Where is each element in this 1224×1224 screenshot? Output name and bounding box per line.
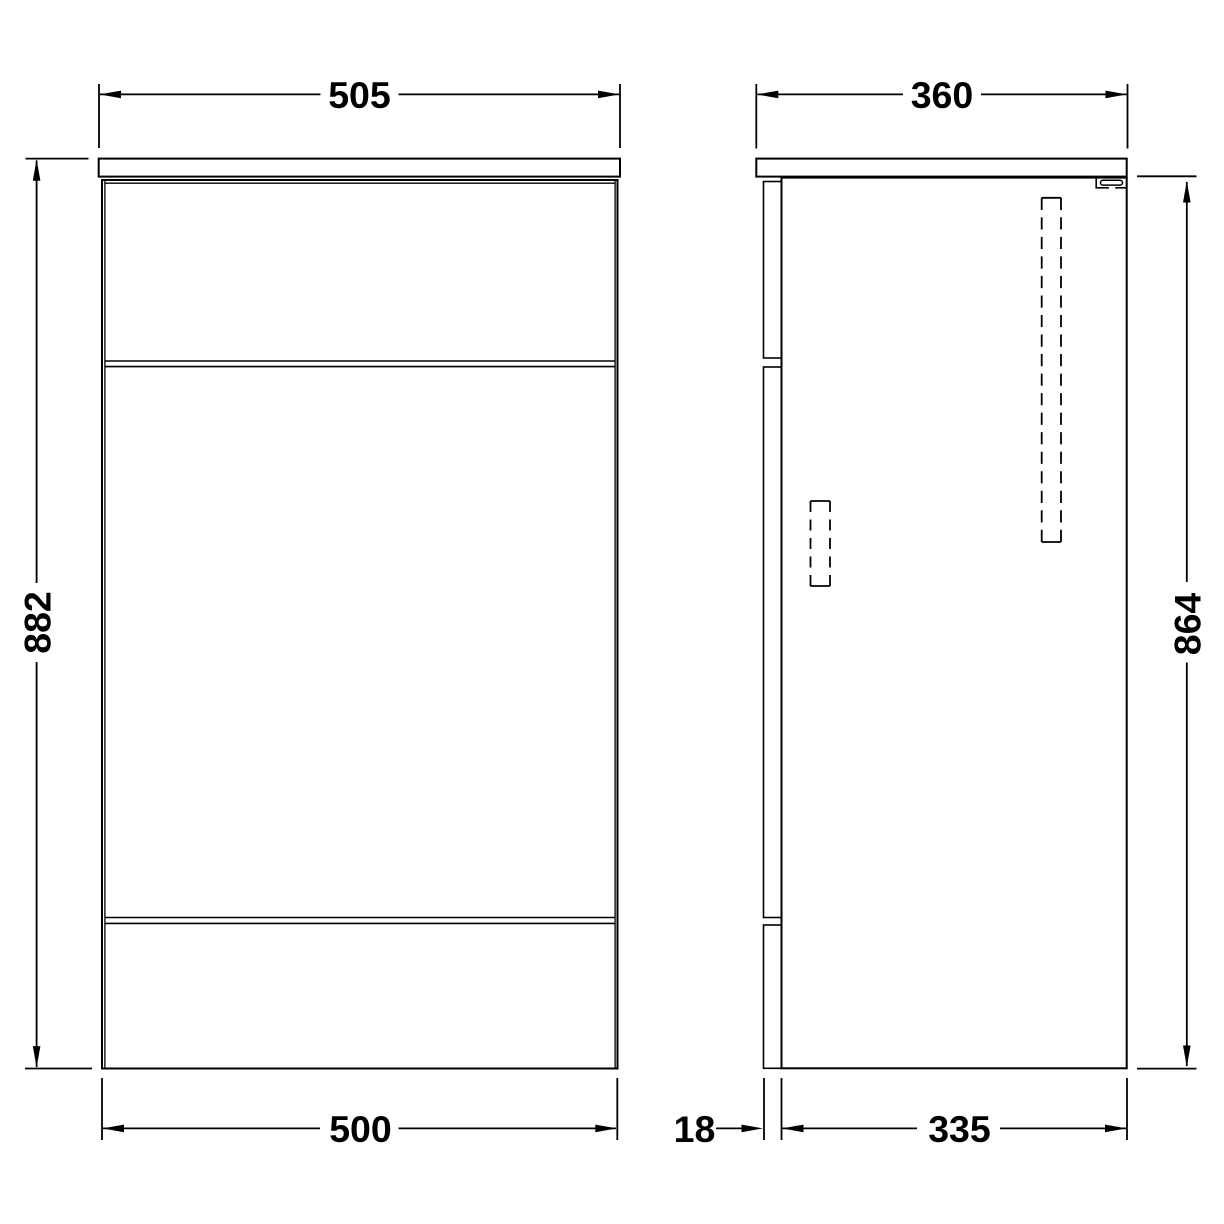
svg-text:335: 335 [928,1108,991,1150]
svg-text:360: 360 [911,74,974,116]
svg-text:864: 864 [1166,593,1208,656]
svg-text:500: 500 [329,1108,392,1150]
svg-text:882: 882 [16,591,58,654]
svg-text:18: 18 [674,1108,716,1150]
svg-text:505: 505 [328,74,391,116]
